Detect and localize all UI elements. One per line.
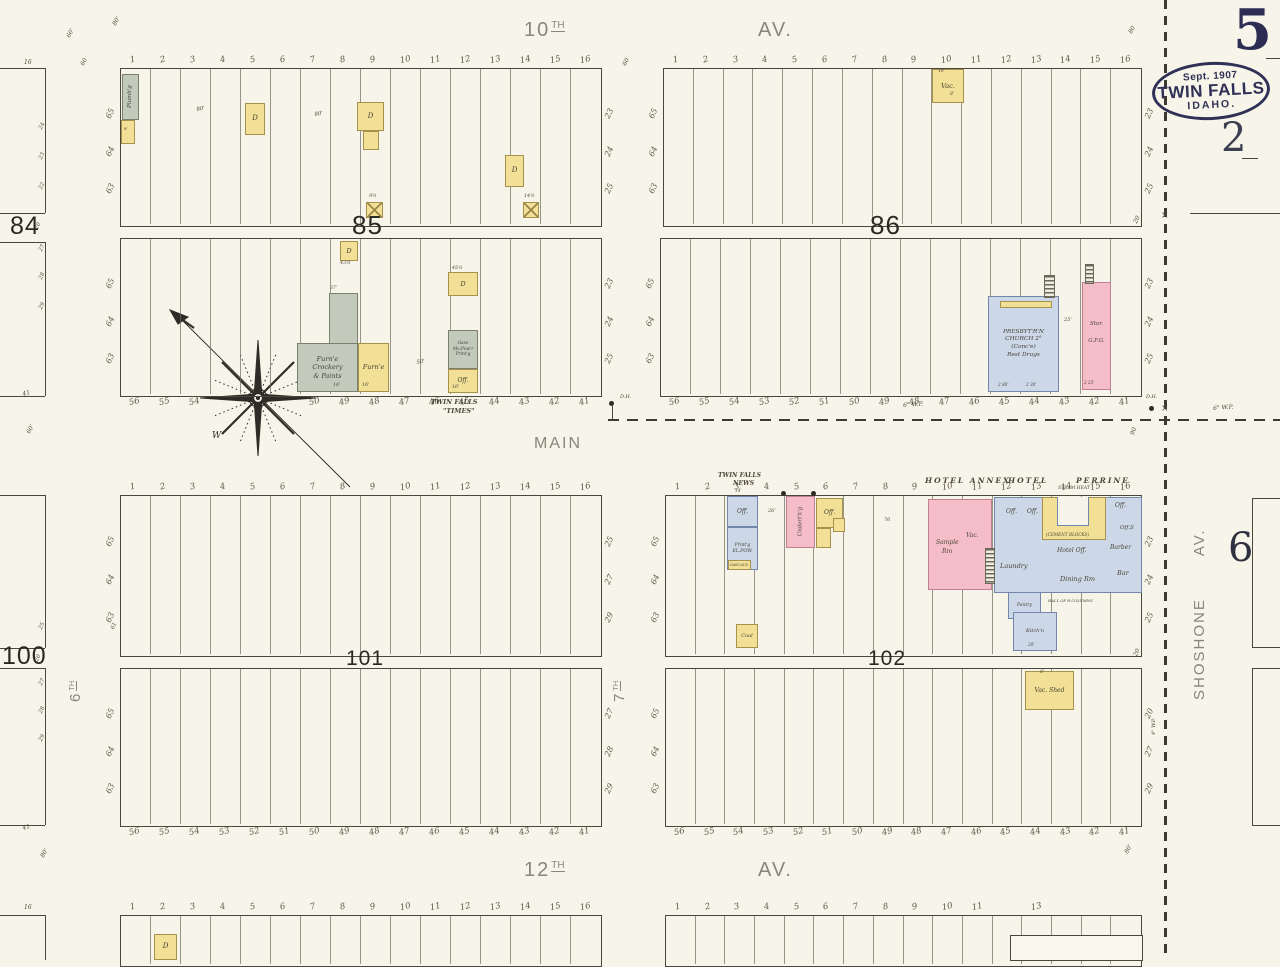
building-plumbing-shop: Plumb'g (122, 74, 139, 120)
map-annotation: 14½ (524, 194, 535, 199)
building-store-building-12th (1010, 935, 1143, 961)
lot-number: 63 (104, 182, 116, 195)
lot-divider (780, 239, 781, 394)
lot-divider (420, 669, 421, 824)
lot-number: 6 (822, 901, 830, 912)
lot-number: 13 (489, 901, 502, 913)
lot-number: 56 (673, 826, 686, 838)
map-annotation: Hotel Off. (1057, 548, 1087, 555)
lot-divider (784, 496, 785, 654)
lot-number: 7 (309, 54, 317, 65)
map-annotation: 45½ (452, 266, 463, 271)
lot-divider (510, 916, 511, 964)
lot-number: 47 (398, 826, 411, 838)
lot-number: 1 (129, 481, 137, 492)
lot-number: 12 (1000, 54, 1013, 66)
lot-number: 43 (1058, 396, 1071, 408)
lot-divider (570, 669, 571, 824)
lot-divider (903, 916, 904, 964)
map-annotation: 6" W.P. (903, 402, 924, 410)
map-line (1190, 213, 1280, 214)
lot-number: 54 (728, 396, 741, 408)
lot-divider (992, 916, 993, 964)
lot-number: 11 (429, 481, 442, 493)
lot-number: 4 (219, 54, 227, 65)
lot-number: 42 (1088, 826, 1101, 838)
lot-number: 15 (549, 901, 562, 913)
lot-number: 24 (1143, 314, 1155, 327)
lot-number: 65 (104, 107, 116, 120)
building-label: Off. (824, 509, 835, 517)
building-outbuilding-lot14 (523, 202, 539, 218)
lot-divider (510, 69, 511, 224)
map-line (45, 668, 46, 825)
lot-number: 54 (188, 826, 201, 838)
lot-number: 52 (248, 826, 261, 838)
building-furniture-crockery-paints: Furn'eCrockery& Paints (297, 343, 358, 392)
lot-divider (390, 669, 391, 824)
lot-number: 27 (1143, 744, 1155, 757)
lot-divider (540, 496, 541, 654)
lot-number: 55 (698, 396, 711, 408)
street-label-shoshone-av: SHOSHONEAV. (1192, 528, 1207, 700)
lot-number: 65 (104, 707, 116, 720)
lot-number: 49 (878, 396, 891, 408)
lot-number: 29 (1143, 782, 1155, 795)
map-annotation: 16' (333, 383, 340, 388)
map-annotation: 2 30' (1026, 383, 1036, 388)
lot-number: 1 (674, 481, 682, 492)
lot-divider (180, 239, 181, 394)
block-number: 101 (346, 648, 384, 669)
block-number: 85 (352, 212, 383, 238)
lot-divider (810, 239, 811, 394)
map-line (45, 68, 46, 213)
lot-number: 12 (459, 54, 472, 66)
map-annotation: 9½ (369, 194, 377, 199)
lot-divider (360, 496, 361, 654)
lot-divider (872, 69, 873, 224)
lot-number: 48 (368, 826, 381, 838)
lot-number: 56 (128, 396, 141, 408)
lot-divider (873, 916, 874, 964)
building-label: D (460, 280, 465, 288)
block-number: 100 (2, 644, 47, 669)
lot-number: 24 (603, 314, 615, 327)
city-block (120, 495, 602, 657)
lot-number: 9 (369, 901, 377, 912)
block-number: 84 (10, 214, 40, 239)
stamp-state: IDAHO. (1187, 98, 1236, 113)
lot-number: 53 (758, 396, 771, 408)
map-annotation: 25' (1064, 318, 1072, 324)
building-label: Stor.G.F.G. (1088, 321, 1105, 350)
building-gasoline-power-printing: GasoMo.Pow'rPrint'g (448, 330, 478, 369)
lot-number: 50 (308, 826, 321, 838)
lot-number: 2 (703, 901, 711, 912)
lot-number: 10 (941, 901, 954, 913)
lot-number: 25 (603, 535, 615, 548)
lot-number: 64 (104, 144, 116, 157)
lot-divider (270, 496, 271, 654)
map-annotation: Vac. (966, 533, 979, 540)
lot-number: 1 (672, 54, 680, 65)
lot-divider (150, 669, 151, 824)
lot-number: 52 (792, 826, 805, 838)
lot-number: 46 (970, 826, 983, 838)
lot-number: 42 (1088, 396, 1101, 408)
lot-divider (450, 496, 451, 654)
lot-number: 55 (158, 826, 171, 838)
lot-number: 11 (429, 54, 442, 66)
lot-divider (210, 496, 211, 654)
lot-number: 44 (1029, 826, 1042, 838)
building-office-lot6-ext2 (833, 518, 845, 532)
lot-number: 10 (399, 901, 412, 913)
map-annotation: 16' (452, 385, 459, 390)
lot-number: 8 (880, 54, 888, 65)
lot-number: 64 (104, 573, 116, 586)
street-label-12th-av-suffix: AV. (758, 860, 793, 880)
lot-number: 65 (104, 277, 116, 290)
map-annotation: Off. (1027, 509, 1038, 516)
map-line (1242, 158, 1258, 159)
lot-divider (150, 239, 151, 394)
lot-divider (842, 69, 843, 224)
lot-number: 23 (1143, 107, 1155, 120)
building-label: D (346, 247, 351, 255)
map-annotation: HOTEL (1008, 477, 1048, 485)
map-annotation: HALL OF R COLUMNS (1048, 599, 1093, 603)
lot-divider (270, 69, 271, 224)
block-number: 102 (868, 648, 906, 669)
lot-number: 16 (579, 901, 592, 913)
lot-divider (1080, 239, 1081, 394)
map-line (1252, 668, 1280, 669)
lot-number: 51 (818, 396, 831, 408)
lot-number: 48 (910, 826, 923, 838)
map-annotation: 90 (1130, 427, 1139, 436)
lot-divider (390, 239, 391, 394)
lot-number: 5 (249, 901, 257, 912)
lot-divider (902, 69, 903, 224)
lot-number: 1 (129, 901, 137, 912)
lot-number: 9 (911, 901, 919, 912)
map-annotation: 80' (40, 848, 50, 859)
lot-number: 2 (159, 481, 167, 492)
lot-number: 48 (368, 396, 381, 408)
lot-divider (240, 669, 241, 824)
lot-divider (570, 239, 571, 394)
map-line (0, 242, 45, 243)
lot-divider (330, 916, 331, 964)
lot-number: 41 (578, 826, 591, 838)
lot-number: 41 (1118, 826, 1131, 838)
building-label: Undert'k'g (797, 507, 804, 537)
lot-number: 42 (548, 396, 561, 408)
lot-number: 43 (518, 396, 531, 408)
building-hotel-stairs (985, 548, 995, 584)
lot-number: 23 (603, 277, 615, 290)
building-dwelling-lot5: D (245, 103, 265, 135)
lot-number: 44 (1028, 396, 1041, 408)
lot-number: 8 (339, 54, 347, 65)
lot-number: 11 (971, 901, 984, 913)
hydrant-dot (1149, 406, 1154, 411)
lot-divider (210, 69, 211, 224)
map-annotation: Bar (1117, 570, 1129, 577)
lot-divider (240, 239, 241, 394)
building-gfg-chimney (1085, 264, 1094, 284)
map-annotation: 10' (938, 70, 945, 75)
building-vacant-store: Vac. (932, 69, 964, 103)
lot-divider (150, 916, 151, 964)
lot-number: 41 (578, 396, 591, 408)
map-annotation: Off. (1115, 503, 1126, 510)
lot-number: 49 (881, 826, 894, 838)
adjacent-sheet-number: 2 (1221, 118, 1246, 158)
lot-number: 46 (968, 396, 981, 408)
lot-number: 55 (702, 826, 715, 838)
building-label: Vac. (941, 82, 955, 90)
lot-number: 14 (1059, 54, 1072, 66)
map-annotation: 80' (1124, 844, 1134, 855)
lot-number: 15 (549, 54, 562, 66)
lot-divider (150, 69, 151, 224)
lot-number: 65 (647, 107, 659, 120)
building-label: Print'gEL.POW. (732, 543, 752, 555)
map-annotation: 43½ (340, 261, 351, 266)
lot-divider (240, 69, 241, 224)
lot-number: 25 (1143, 352, 1155, 365)
lot-number: 4 (219, 901, 227, 912)
lot-divider (180, 496, 181, 654)
lot-divider (962, 669, 963, 824)
lot-divider (991, 69, 992, 224)
lot-number: 56 (128, 826, 141, 838)
lot-divider (784, 669, 785, 824)
map-line (612, 406, 613, 420)
lot-divider (932, 669, 933, 824)
lot-divider (540, 239, 541, 394)
lot-divider (1110, 69, 1111, 224)
lot-divider (420, 239, 421, 394)
lot-divider (784, 916, 785, 964)
lot-number: 7 (852, 901, 860, 912)
lot-divider (540, 669, 541, 824)
building-gasoline-engine-aux: GASO.AUX. (728, 560, 751, 570)
building-label: Plumb'g (127, 86, 134, 109)
lot-number: 9 (911, 481, 919, 492)
lot-divider (930, 239, 931, 394)
lot-divider (480, 916, 481, 964)
building-church-porch (1000, 301, 1052, 308)
map-annotation: 6" W.P. (1213, 405, 1234, 413)
building-gfg-store: Stor.G.F.G. (1082, 282, 1111, 390)
lot-number: 12 (459, 481, 472, 493)
city-limit-dashed-line (1164, 0, 1167, 960)
sheet-number: 5 (1233, 2, 1272, 58)
map-annotation: "TIMES" (443, 408, 475, 415)
lot-number: 13 (1030, 901, 1043, 913)
lot-number: 3 (189, 54, 197, 65)
map-line (1266, 58, 1280, 59)
building-label: D (512, 166, 518, 175)
lot-divider (540, 916, 541, 964)
lot-number: 14 (519, 901, 532, 913)
building-label: Coal (741, 633, 752, 640)
hydrant-dot (811, 491, 816, 496)
lot-divider (962, 916, 963, 964)
lot-number: 1 (674, 901, 682, 912)
lot-divider (480, 496, 481, 654)
map-annotation: D.H. (620, 395, 631, 401)
lot-number: 50 (848, 396, 861, 408)
lot-number: 4 (761, 54, 769, 65)
lot-number: 7 (852, 481, 860, 492)
map-line (45, 915, 46, 960)
lot-number: 9 (910, 54, 918, 65)
lot-number: 51 (278, 826, 291, 838)
lot-number: 10 (399, 54, 412, 66)
building-church-chimney (1044, 275, 1055, 298)
lot-divider (450, 69, 451, 224)
lot-number: 47 (940, 826, 953, 838)
lot-divider (390, 496, 391, 654)
lot-divider (330, 669, 331, 824)
lot-number: 64 (649, 744, 661, 757)
map-annotation: 80' (112, 16, 122, 27)
map-annotation: Barber (1110, 545, 1131, 552)
lot-divider (870, 239, 871, 394)
street-label-10th-av-suffix: AV. (758, 20, 793, 40)
lot-divider (270, 239, 271, 394)
map-title-stamp: Sept. 1907 TWIN FALLS IDAHO. (1151, 59, 1272, 123)
lot-number: 25 (603, 352, 615, 365)
lot-divider (510, 239, 511, 394)
map-annotation: 16' (362, 383, 369, 388)
lot-number: 63 (647, 182, 659, 195)
lot-number: 9 (369, 481, 377, 492)
building-label: Off. (737, 508, 748, 516)
map-line (0, 915, 45, 916)
lot-divider (420, 69, 421, 224)
lot-divider (903, 496, 904, 654)
map-annotation: Off. (1006, 509, 1017, 516)
lot-number: 5 (791, 54, 799, 65)
lot-number: 44 (488, 826, 501, 838)
lot-divider (1081, 669, 1082, 824)
lot-divider (510, 496, 511, 654)
lot-number: 5 (792, 481, 800, 492)
lot-divider (390, 916, 391, 964)
lot-number: 1 (129, 54, 137, 65)
lot-divider (690, 239, 691, 394)
lot-number: 65 (649, 707, 661, 720)
map-annotation: Dining Rm (1060, 576, 1095, 583)
lot-number: 14 (519, 481, 532, 493)
lot-divider (843, 669, 844, 824)
lot-number: 64 (647, 144, 659, 157)
lot-number: 15 (1089, 54, 1102, 66)
lot-divider (1080, 69, 1081, 224)
lot-divider (992, 669, 993, 824)
lot-number: 64 (104, 744, 116, 757)
lot-divider (1021, 669, 1022, 824)
lot-divider (723, 69, 724, 224)
map-line (0, 495, 45, 496)
building-label: GASO.AUX. (730, 563, 749, 567)
map-annotation: HOTEL ANNEX (925, 477, 1011, 485)
lot-number: 10 (940, 54, 953, 66)
block-number: 86 (870, 212, 901, 238)
hydrant-dot (781, 491, 786, 496)
lot-number: 49 (338, 826, 351, 838)
street-label-10th-av-name: 10TH (524, 20, 565, 40)
lot-number: 2 (159, 901, 167, 912)
lot-number: 11 (970, 54, 983, 66)
map-annotation: 20' (1028, 643, 1034, 648)
lot-divider (510, 669, 511, 824)
compass-west-label: W (212, 431, 222, 441)
building-label: Furn'e (363, 363, 385, 371)
lot-divider (570, 496, 571, 654)
lot-divider (812, 69, 813, 224)
hydrant-dot (609, 401, 614, 406)
lot-number: 6 (279, 54, 287, 65)
lot-number: 5 (792, 901, 800, 912)
lot-number: 54 (732, 826, 745, 838)
lot-number: 8 (882, 901, 890, 912)
lot-divider (813, 916, 814, 964)
lot-divider (450, 669, 451, 824)
map-annotation: 26' (768, 509, 776, 515)
lot-divider (360, 916, 361, 964)
lot-divider (1021, 69, 1022, 224)
lot-number: 8 (882, 481, 890, 492)
lot-number: 27 (603, 573, 615, 586)
lot-divider (752, 69, 753, 224)
lot-divider (724, 496, 725, 654)
city-block (663, 68, 1142, 227)
lot-number: 29 (603, 782, 615, 795)
lot-divider (840, 239, 841, 394)
lot-number: 4 (763, 481, 771, 492)
building-vacant-shed: Vac. Shed (1025, 671, 1074, 710)
lot-divider (330, 496, 331, 654)
map-line (0, 68, 45, 69)
lot-divider (450, 916, 451, 964)
map-annotation: STEAM HEAT (1058, 487, 1090, 492)
lot-number: 5 (249, 54, 257, 65)
lot-divider (390, 69, 391, 224)
lot-divider (180, 69, 181, 224)
lot-divider (300, 496, 301, 654)
lot-number: 65 (644, 277, 656, 290)
lot-number: 63 (644, 352, 656, 365)
building-dwelling-lot14: D (505, 155, 524, 187)
lot-divider (754, 916, 755, 964)
map-annotation: 60 (622, 57, 632, 67)
map-annotation: × (1161, 405, 1169, 415)
lot-divider (300, 916, 301, 964)
lot-number: 41 (1118, 396, 1131, 408)
lot-divider (270, 916, 271, 964)
building-dwelling-12th: D (154, 934, 177, 960)
lot-number: 6 (279, 901, 287, 912)
lot-number: 50 (851, 826, 864, 838)
lot-number: 13 (489, 54, 502, 66)
